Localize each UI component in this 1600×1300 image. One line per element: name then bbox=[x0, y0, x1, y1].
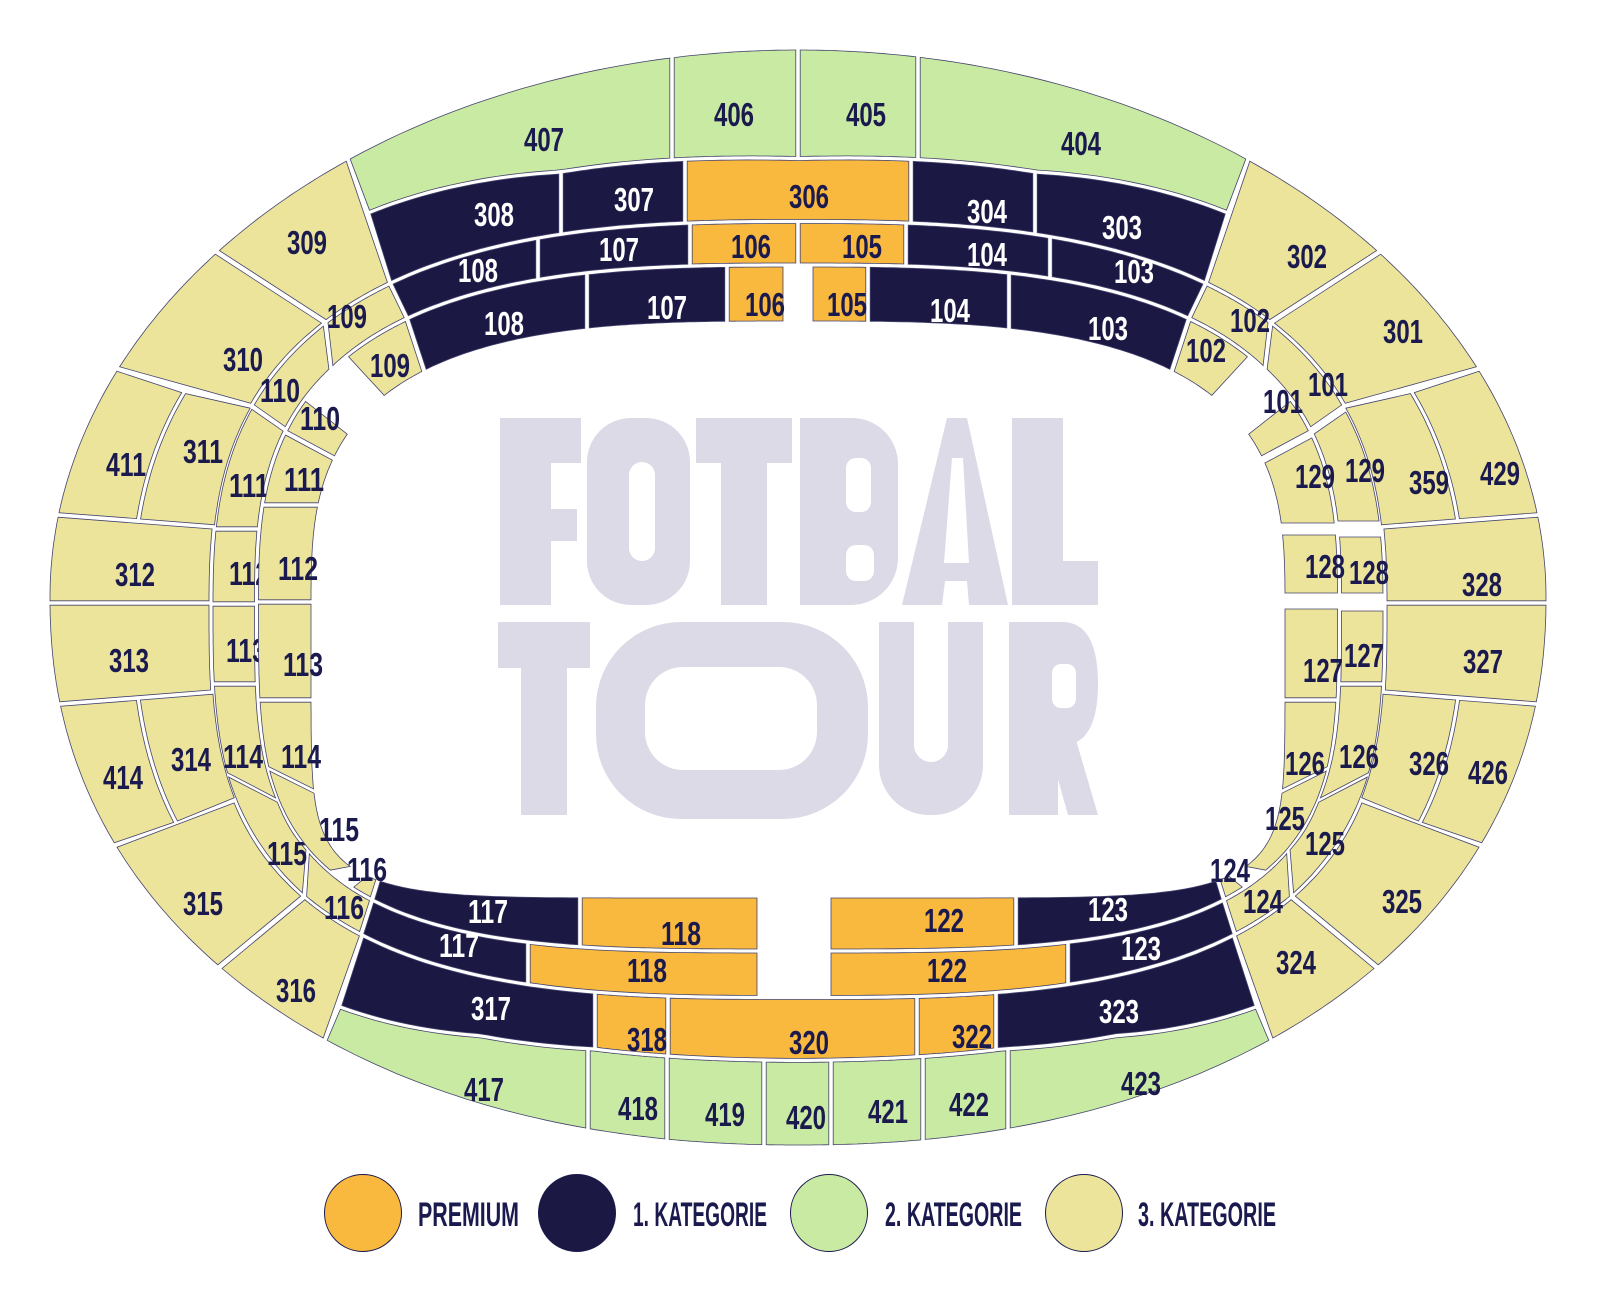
svg-text:414: 414 bbox=[103, 759, 143, 796]
svg-text:129: 129 bbox=[1345, 452, 1385, 489]
svg-text:307: 307 bbox=[614, 181, 654, 218]
svg-text:303: 303 bbox=[1102, 209, 1142, 246]
svg-text:310: 310 bbox=[223, 341, 263, 378]
svg-text:115: 115 bbox=[267, 835, 307, 872]
svg-text:318: 318 bbox=[627, 1021, 667, 1058]
svg-text:PREMIUM: PREMIUM bbox=[418, 1196, 519, 1234]
svg-text:312: 312 bbox=[115, 556, 155, 593]
svg-text:104: 104 bbox=[930, 292, 970, 329]
svg-text:107: 107 bbox=[647, 289, 687, 326]
svg-text:128: 128 bbox=[1349, 554, 1389, 591]
svg-text:113: 113 bbox=[283, 646, 323, 683]
svg-text:315: 315 bbox=[183, 885, 223, 922]
svg-text:302: 302 bbox=[1287, 238, 1327, 275]
svg-text:109: 109 bbox=[370, 347, 410, 384]
svg-text:117: 117 bbox=[439, 927, 479, 964]
svg-text:323: 323 bbox=[1099, 993, 1139, 1030]
svg-text:420: 420 bbox=[786, 1099, 826, 1136]
svg-text:123: 123 bbox=[1121, 930, 1161, 967]
svg-text:112: 112 bbox=[278, 550, 318, 587]
svg-text:328: 328 bbox=[1462, 566, 1502, 603]
svg-text:404: 404 bbox=[1061, 125, 1101, 162]
svg-text:122: 122 bbox=[924, 902, 964, 939]
svg-text:311: 311 bbox=[183, 433, 223, 470]
svg-text:118: 118 bbox=[661, 915, 701, 952]
svg-text:406: 406 bbox=[714, 96, 754, 133]
svg-text:128: 128 bbox=[1305, 548, 1345, 585]
svg-text:405: 405 bbox=[846, 96, 886, 133]
svg-text:116: 116 bbox=[324, 889, 364, 926]
svg-text:102: 102 bbox=[1186, 332, 1226, 369]
svg-text:359: 359 bbox=[1409, 464, 1449, 501]
svg-text:429: 429 bbox=[1480, 455, 1520, 492]
svg-text:109: 109 bbox=[327, 298, 367, 335]
svg-text:326: 326 bbox=[1409, 745, 1449, 782]
svg-text:105: 105 bbox=[827, 286, 867, 323]
svg-text:106: 106 bbox=[745, 286, 785, 323]
svg-text:117: 117 bbox=[468, 893, 508, 930]
svg-text:419: 419 bbox=[705, 1096, 745, 1133]
svg-text:127: 127 bbox=[1303, 652, 1343, 689]
svg-text:313: 313 bbox=[109, 642, 149, 679]
svg-text:106: 106 bbox=[731, 228, 771, 265]
svg-text:2. KATEGORIE: 2. KATEGORIE bbox=[885, 1196, 1022, 1234]
svg-text:129: 129 bbox=[1295, 458, 1335, 495]
svg-text:411: 411 bbox=[106, 446, 146, 483]
svg-text:417: 417 bbox=[464, 1071, 504, 1108]
svg-text:111: 111 bbox=[284, 461, 324, 498]
svg-text:314: 314 bbox=[171, 741, 211, 778]
svg-text:317: 317 bbox=[471, 990, 511, 1027]
svg-text:110: 110 bbox=[300, 400, 340, 437]
svg-text:104: 104 bbox=[967, 236, 1007, 273]
svg-text:101: 101 bbox=[1263, 383, 1303, 420]
svg-text:111: 111 bbox=[229, 467, 269, 504]
svg-text:418: 418 bbox=[618, 1090, 658, 1127]
svg-text:108: 108 bbox=[484, 305, 524, 342]
svg-text:309: 309 bbox=[287, 224, 327, 261]
svg-text:304: 304 bbox=[967, 193, 1007, 230]
svg-text:103: 103 bbox=[1088, 310, 1128, 347]
svg-text:301: 301 bbox=[1383, 313, 1423, 350]
svg-text:423: 423 bbox=[1121, 1065, 1161, 1102]
svg-text:110: 110 bbox=[260, 372, 300, 409]
svg-text:125: 125 bbox=[1265, 800, 1305, 837]
svg-text:421: 421 bbox=[868, 1093, 908, 1130]
svg-text:306: 306 bbox=[789, 178, 829, 215]
svg-text:308: 308 bbox=[474, 196, 514, 233]
svg-text:108: 108 bbox=[458, 252, 498, 289]
svg-text:115: 115 bbox=[319, 811, 359, 848]
svg-text:101: 101 bbox=[1308, 366, 1348, 403]
svg-text:320: 320 bbox=[789, 1024, 829, 1061]
svg-text:102: 102 bbox=[1230, 302, 1270, 339]
svg-text:122: 122 bbox=[927, 952, 967, 989]
svg-text:114: 114 bbox=[281, 738, 321, 775]
svg-text:126: 126 bbox=[1339, 738, 1379, 775]
svg-text:103: 103 bbox=[1114, 253, 1154, 290]
svg-text:325: 325 bbox=[1382, 883, 1422, 920]
svg-text:322: 322 bbox=[952, 1018, 992, 1055]
svg-text:327: 327 bbox=[1463, 643, 1503, 680]
svg-text:105: 105 bbox=[842, 228, 882, 265]
svg-text:422: 422 bbox=[949, 1086, 989, 1123]
svg-text:426: 426 bbox=[1468, 754, 1508, 791]
svg-text:1. KATEGORIE: 1. KATEGORIE bbox=[633, 1196, 767, 1234]
svg-text:407: 407 bbox=[524, 121, 564, 158]
svg-text:118: 118 bbox=[627, 952, 667, 989]
svg-text:316: 316 bbox=[276, 972, 316, 1009]
svg-text:114: 114 bbox=[223, 738, 263, 775]
svg-text:107: 107 bbox=[599, 231, 639, 268]
svg-text:127: 127 bbox=[1344, 637, 1384, 674]
svg-text:3. KATEGORIE: 3. KATEGORIE bbox=[1138, 1196, 1276, 1234]
svg-text:125: 125 bbox=[1305, 825, 1345, 862]
svg-text:123: 123 bbox=[1088, 891, 1128, 928]
svg-text:324: 324 bbox=[1276, 944, 1316, 981]
